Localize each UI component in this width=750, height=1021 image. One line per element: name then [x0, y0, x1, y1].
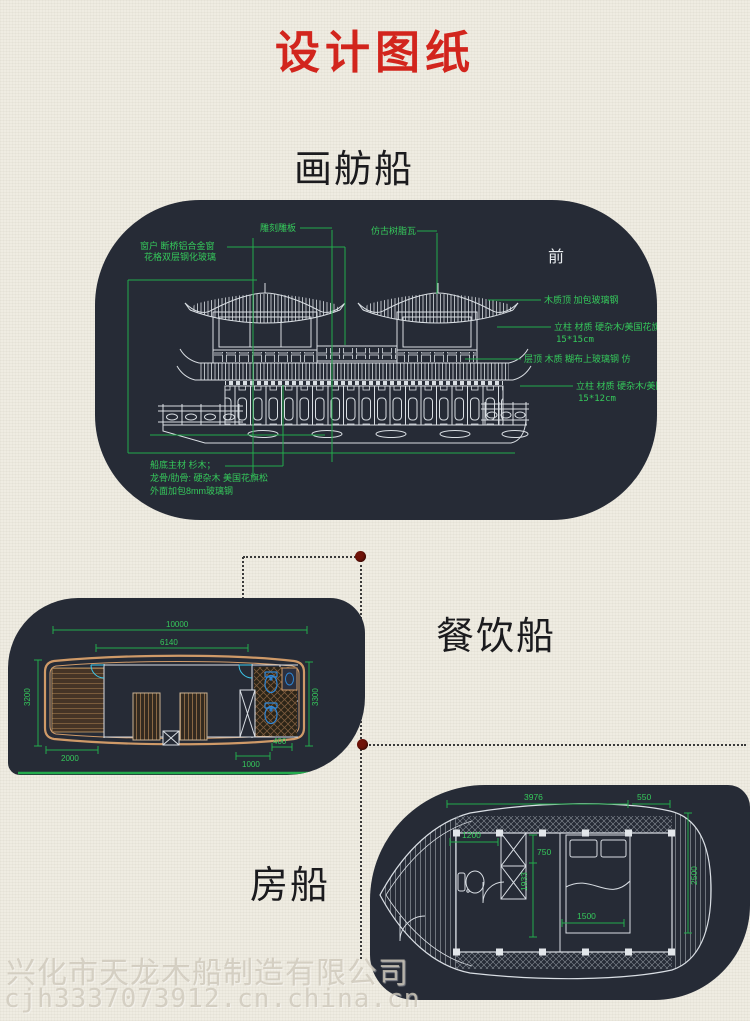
stern-deck-planks: [673, 807, 713, 979]
connector-line: [242, 557, 244, 599]
dim-top-right: 550: [637, 792, 651, 802]
label-house-boat: 房船: [250, 854, 330, 909]
cabinet-x: [240, 690, 255, 737]
note-carving: 雕刻雕板: [260, 222, 296, 233]
note-column-2: 立柱 材质 硬杂木/美国: [576, 380, 657, 391]
note-roof-tile: 仿古树脂瓦: [371, 225, 416, 236]
small-box-x: [163, 731, 179, 745]
walkway-top: [456, 816, 672, 833]
walkway-bottom: [456, 952, 672, 969]
dining-boat-plan: 10000 6140 3200 3300 2000 1000 400: [8, 598, 365, 775]
note-window-2: 花格双层钢化玻璃: [144, 251, 216, 262]
dim-750: 750: [537, 847, 551, 857]
dim-top-left: 50: [401, 792, 411, 802]
orientation-front-label: 前: [548, 248, 564, 266]
sink-unit: [282, 668, 297, 690]
dim-bed: 1500: [577, 911, 596, 921]
dim-cabin: 6140: [160, 638, 178, 647]
note-column-1-size: 15*15cm: [556, 335, 594, 345]
connector-dot: [357, 739, 368, 750]
blueprint-panel-dining-plan: 10000 6140 3200 3300 2000 1000 400: [8, 598, 365, 775]
dim-top: 3976: [524, 792, 543, 802]
table: [133, 693, 160, 740]
note-deck-roof: 层顶 木质 糊布上玻璃钢 仿: [524, 353, 631, 364]
note-wood-top: 木质顶 加包玻璃钢: [544, 294, 619, 305]
dim-1933: 1933: [519, 872, 529, 891]
bow-deck: [52, 668, 104, 732]
note-column-2-size: 15*12cm: [578, 394, 616, 404]
note-hull-1: 船底主材 杉木；: [150, 459, 216, 470]
dim-length: 10000: [166, 620, 189, 629]
connector-line: [243, 556, 359, 558]
dim-aft2: 400: [273, 737, 287, 746]
label-dining-boat: 餐饮船: [436, 605, 556, 660]
note-hull-3: 外面加包8mm玻璃钢: [150, 485, 233, 496]
house-boat-plan: 3976 550 50 2500 1200 750 1933 1500: [370, 785, 750, 1000]
dim-width-right: 3300: [311, 688, 320, 706]
dim-width-left: 3200: [23, 688, 32, 706]
dim-1200: 1200: [462, 830, 481, 840]
table: [180, 693, 207, 740]
promo-image: 设计图纸 画舫船 餐饮船 房船: [0, 0, 750, 1021]
note-column-1: 立柱 材质 硬杂木/美国花旗松: [554, 321, 657, 332]
dim-bow: 2000: [61, 754, 79, 763]
note-hull-2: 龙骨/肋骨: 硬杂木 美国花旗松: [150, 472, 268, 483]
dim-aft: 1000: [242, 760, 260, 769]
dim-right: 2500: [689, 866, 699, 885]
connector-line: [366, 744, 746, 746]
label-huafang-boat: 画舫船: [294, 138, 414, 193]
blueprint-panel-elevation: 窗户 断桥铝合金窗 花格双层钢化玻璃 雕刻雕板 仿古树脂瓦 木质顶 加包玻璃钢 …: [95, 200, 657, 520]
elevation-drawing: 窗户 断桥铝合金窗 花格双层钢化玻璃 雕刻雕板 仿古树脂瓦 木质顶 加包玻璃钢 …: [95, 200, 657, 520]
watermark-url: cjh3337073912.cn.china.cn: [4, 984, 420, 1014]
blueprint-panel-house-plan: 3976 550 50 2500 1200 750 1933 1500: [370, 785, 750, 1000]
connector-dot: [355, 551, 366, 562]
door-swings: [91, 665, 252, 678]
note-window-1: 窗户 断桥铝合金窗: [140, 240, 215, 251]
page-title: 设计图纸: [275, 16, 475, 81]
